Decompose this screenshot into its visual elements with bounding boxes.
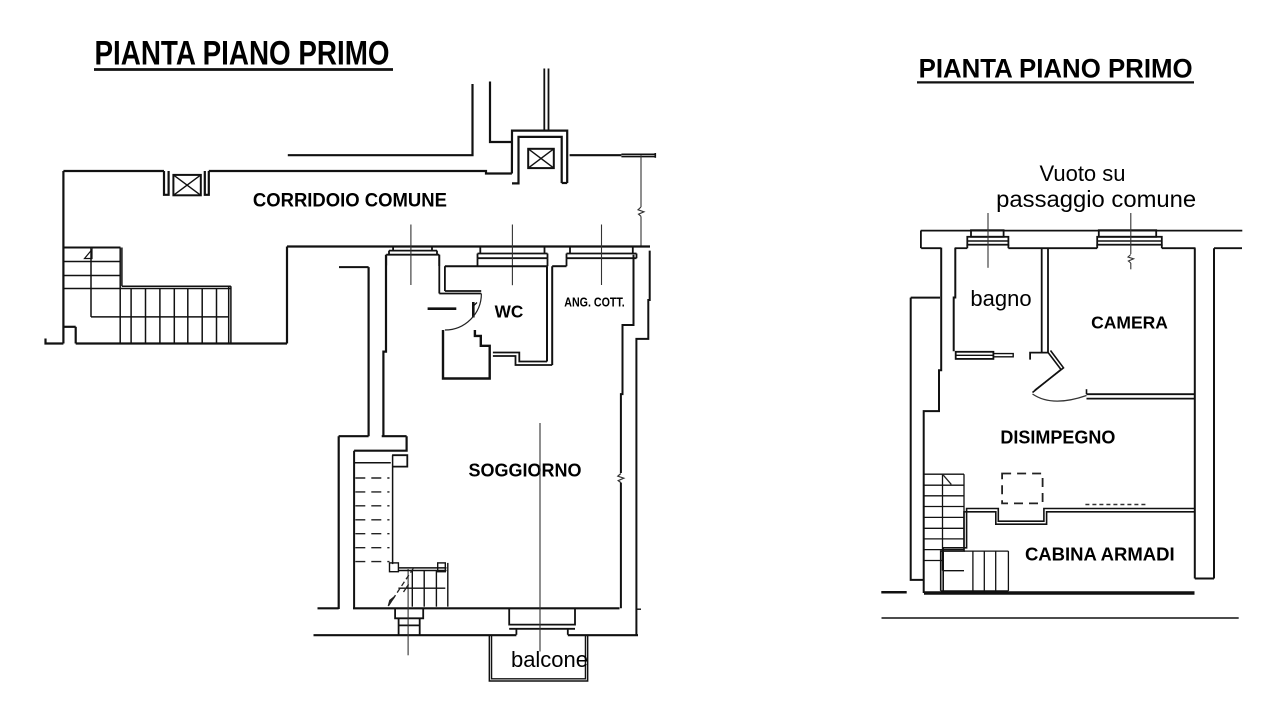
svg-text:WC: WC — [495, 301, 524, 321]
svg-text:PIANTA PIANO PRIMO: PIANTA PIANO PRIMO — [919, 54, 1193, 84]
svg-text:ANG. COTT.: ANG. COTT. — [564, 295, 625, 309]
svg-text:DISIMPEGNO: DISIMPEGNO — [1000, 428, 1115, 448]
svg-text:SOGGIORNO: SOGGIORNO — [468, 461, 581, 481]
svg-text:bagno: bagno — [970, 286, 1031, 311]
svg-text:PIANTA PIANO PRIMO: PIANTA PIANO PRIMO — [95, 35, 390, 73]
svg-text:balcone: balcone — [511, 647, 588, 672]
svg-text:CAMERA: CAMERA — [1091, 313, 1168, 333]
svg-text:CABINA ARMADI: CABINA ARMADI — [1025, 543, 1175, 564]
svg-text:CORRIDOIO COMUNE: CORRIDOIO COMUNE — [253, 190, 447, 211]
svg-text:passaggio comune: passaggio comune — [996, 186, 1196, 212]
svg-text:Vuoto su: Vuoto su — [1039, 161, 1125, 186]
